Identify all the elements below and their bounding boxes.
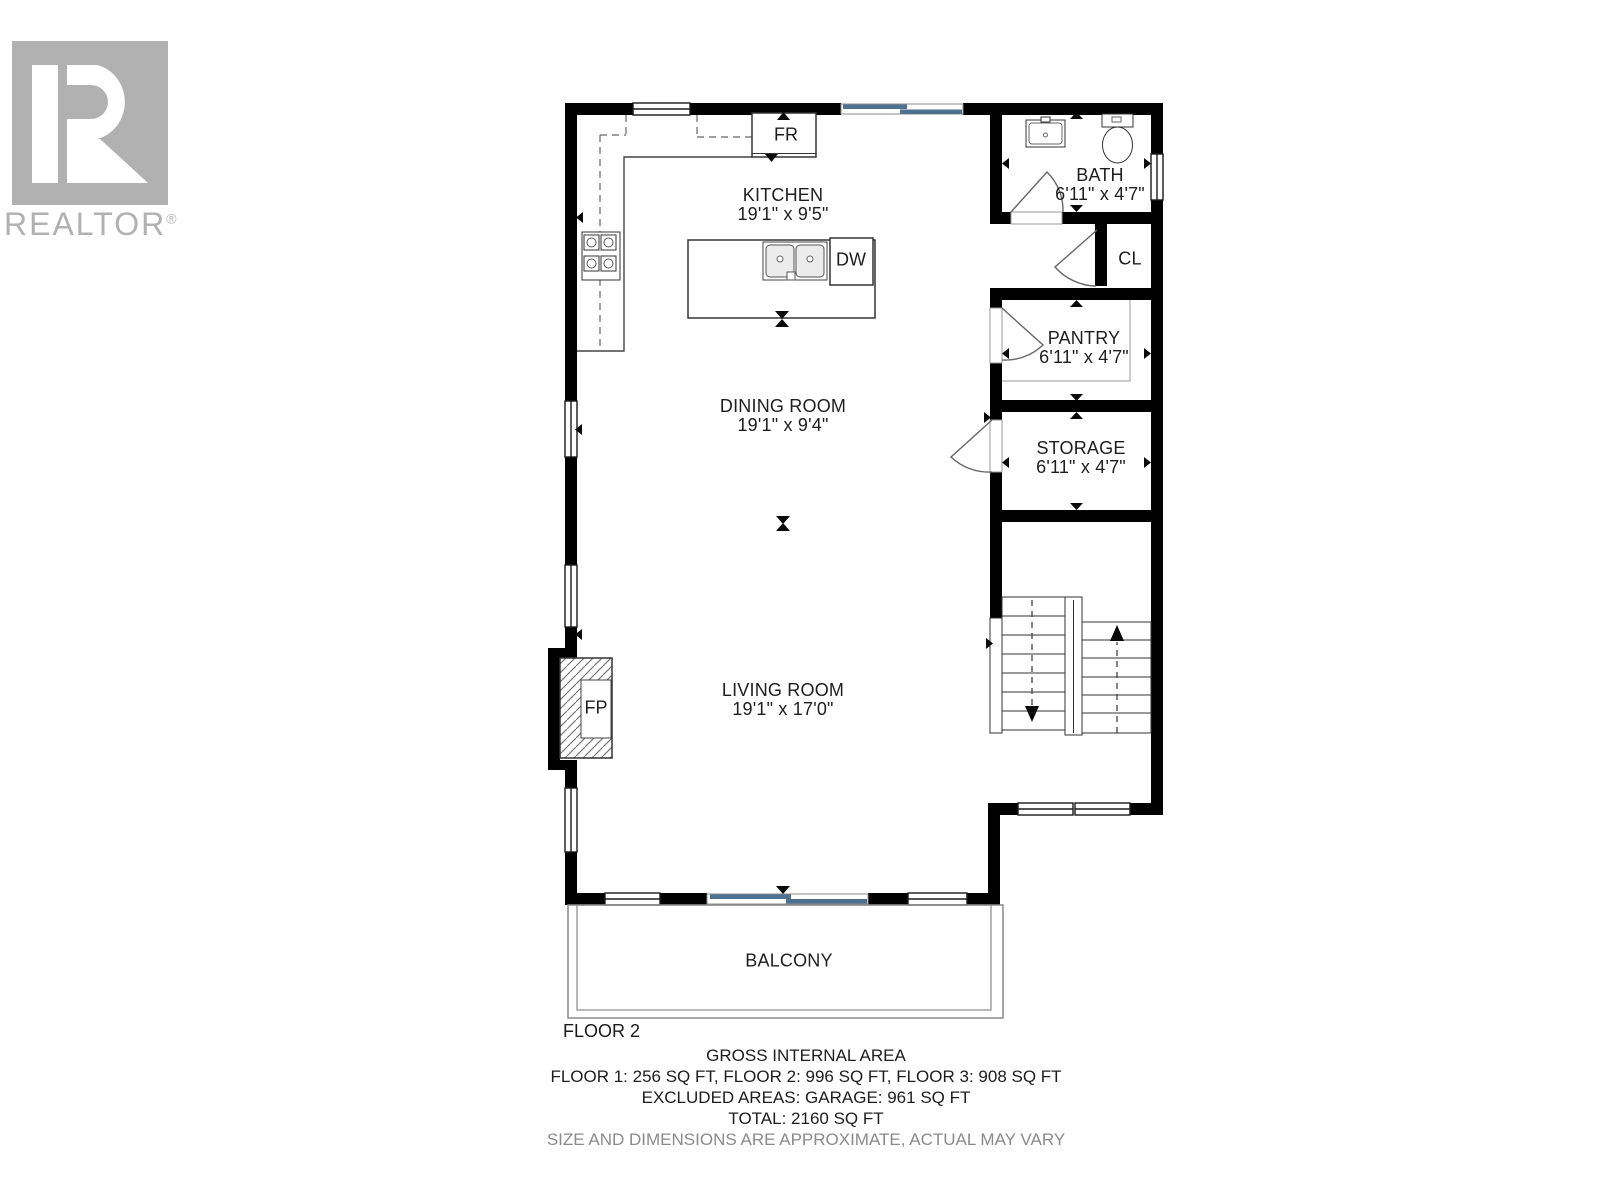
window: [1075, 803, 1130, 815]
room-name: KITCHEN: [737, 186, 828, 205]
room-label-living: LIVING ROOM 19'1" x 17'0": [722, 681, 844, 719]
room-label-dining: DINING ROOM 19'1" x 9'4": [720, 397, 846, 435]
room-label-pantry: PANTRY 6'11" x 4'7": [1039, 329, 1129, 367]
room-name: CL: [1118, 250, 1141, 269]
label-fireplace: FP: [584, 698, 607, 719]
room-name: BALCONY: [745, 952, 832, 971]
room-dims: 6'11" x 4'7": [1039, 348, 1129, 367]
room-name: PANTRY: [1039, 329, 1129, 348]
disclaimer-line: SIZE AND DIMENSIONS ARE APPROXIMATE, ACT…: [547, 1129, 1065, 1150]
room-label-kitchen: KITCHEN 19'1" x 9'5": [737, 186, 828, 224]
toilet-icon: [1102, 114, 1133, 163]
area-summary: GROSS INTERNAL AREA FLOOR 1: 256 SQ FT, …: [547, 1045, 1065, 1150]
sliding-glass-door-top: [841, 104, 963, 114]
dimension-markers: [575, 112, 1151, 894]
label-dishwasher: DW: [836, 250, 866, 271]
closet-door: [1055, 230, 1097, 286]
storage-door: [951, 420, 992, 472]
floor-plan-drawing: [0, 0, 1600, 1200]
room-label-closet: CL: [1118, 250, 1141, 269]
room-label-storage: STORAGE 6'11" x 4'7": [1036, 439, 1126, 477]
sliding-glass-door-bottom: [707, 894, 868, 904]
room-name: DINING ROOM: [720, 397, 846, 416]
staircase: [990, 597, 1151, 735]
total-area-line: TOTAL: 2160 SQ FT: [547, 1108, 1065, 1129]
room-name: LIVING ROOM: [722, 681, 844, 700]
window: [565, 788, 577, 852]
window: [1018, 803, 1073, 815]
room-name: BATH: [1055, 166, 1145, 185]
room-name: STORAGE: [1036, 439, 1126, 458]
room-dims: 19'1" x 17'0": [722, 700, 844, 719]
window: [605, 893, 660, 905]
gross-internal-area-title: GROSS INTERNAL AREA: [547, 1045, 1065, 1066]
window: [633, 103, 690, 115]
floor-label: FLOOR 2: [563, 1021, 640, 1042]
floor-plan-page: REALTOR®: [0, 0, 1600, 1200]
window: [565, 401, 577, 457]
room-label-balcony: BALCONY: [745, 952, 832, 971]
window: [1151, 154, 1163, 200]
room-label-bath: BATH 6'11" x 4'7": [1055, 166, 1145, 204]
room-dims: 6'11" x 4'7": [1036, 458, 1126, 477]
excluded-areas-line: EXCLUDED AREAS: GARAGE: 961 SQ FT: [547, 1087, 1065, 1108]
room-dims: 19'1" x 9'5": [737, 205, 828, 224]
floor-areas-line: FLOOR 1: 256 SQ FT, FLOOR 2: 996 SQ FT, …: [547, 1066, 1065, 1087]
room-dims: 6'11" x 4'7": [1055, 185, 1145, 204]
window: [908, 893, 967, 905]
window: [565, 565, 577, 627]
label-refrigerator: FR: [774, 125, 798, 146]
kitchen-sink-icon: [763, 242, 827, 280]
bath-sink-icon: [1026, 117, 1065, 147]
room-dims: 19'1" x 9'4": [720, 416, 846, 435]
stove-icon: [582, 232, 620, 280]
